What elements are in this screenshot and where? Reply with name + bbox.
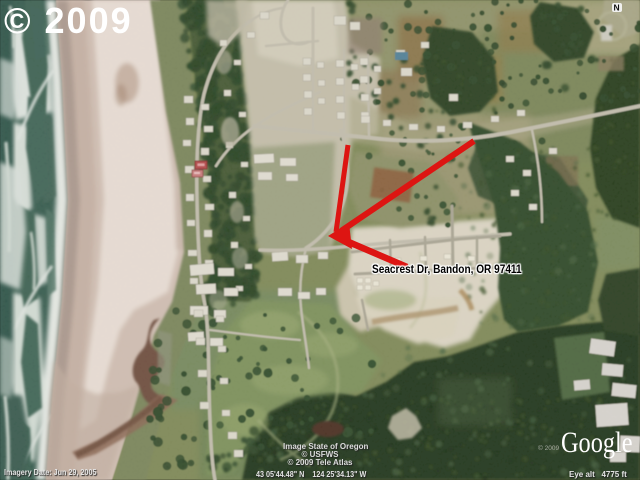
svg-text:N: N <box>614 3 620 13</box>
